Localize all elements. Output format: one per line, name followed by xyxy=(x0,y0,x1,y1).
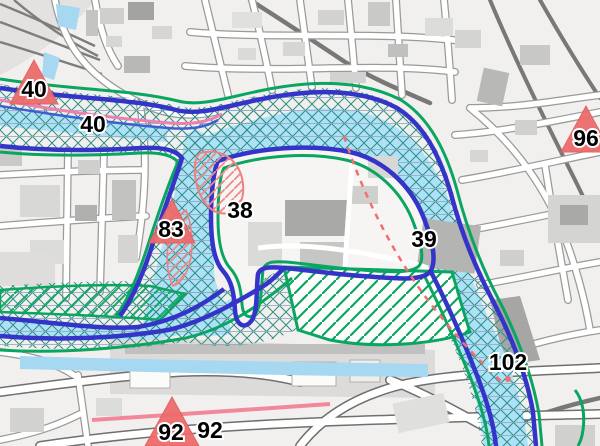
marker-label-83: 83 xyxy=(158,216,184,242)
marker-label-92: 92 xyxy=(158,419,184,445)
zone-label-40: 40 xyxy=(80,111,106,137)
red-dash-endpoint xyxy=(505,376,511,382)
map-canvas[interactable]: 40 83 96 92 40 38 39 102 92 xyxy=(0,0,600,446)
zone-label-39: 39 xyxy=(411,226,437,252)
marker-label-40: 40 xyxy=(21,76,47,102)
marker-label-96: 96 xyxy=(573,125,599,151)
zone-label-92: 92 xyxy=(197,417,223,443)
map-svg: 40 83 96 92 40 38 39 102 92 xyxy=(0,0,600,446)
zone-label-102: 102 xyxy=(489,349,527,375)
zone-label-38: 38 xyxy=(227,197,253,223)
